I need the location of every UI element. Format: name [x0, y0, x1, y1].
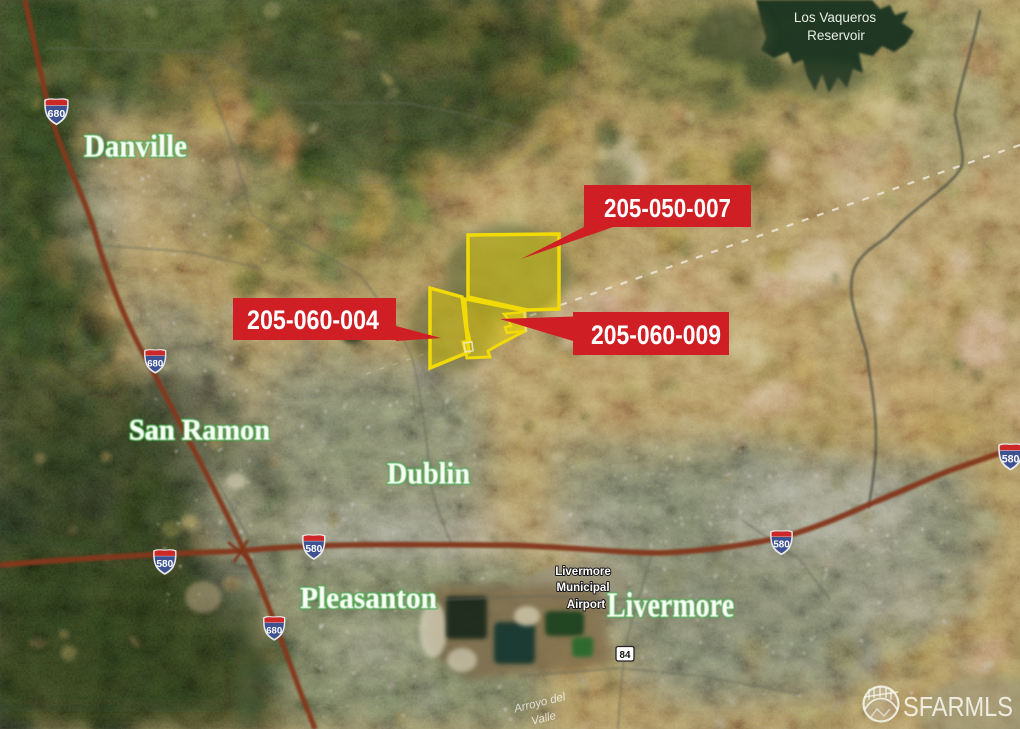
- svg-text:580: 580: [773, 540, 790, 551]
- svg-text:Dublin: Dublin: [387, 457, 470, 491]
- svg-text:SFARMLS: SFARMLS: [903, 691, 1013, 722]
- svg-text:205-060-004: 205-060-004: [247, 305, 379, 335]
- svg-text:205-060-009: 205-060-009: [591, 320, 721, 350]
- svg-text:Livermore: Livermore: [607, 586, 734, 625]
- svg-text:580: 580: [156, 559, 173, 570]
- svg-text:680: 680: [266, 625, 282, 636]
- svg-text:680: 680: [48, 108, 66, 120]
- svg-text:680: 680: [147, 358, 163, 369]
- svg-text:Livermore: Livermore: [555, 566, 611, 578]
- svg-text:Pleasanton: Pleasanton: [300, 581, 437, 615]
- svg-text:Municipal: Municipal: [556, 582, 609, 594]
- svg-text:205-050-007: 205-050-007: [604, 193, 731, 223]
- svg-text:Airport: Airport: [567, 599, 606, 611]
- svg-text:Reservoir: Reservoir: [807, 28, 865, 43]
- svg-text:Los Vaqueros: Los Vaqueros: [794, 10, 877, 25]
- svg-text:580: 580: [305, 544, 322, 555]
- svg-text:San Ramon: San Ramon: [129, 414, 270, 447]
- svg-text:Danville: Danville: [84, 129, 187, 164]
- svg-text:580: 580: [1002, 453, 1020, 465]
- svg-text:84: 84: [620, 650, 631, 661]
